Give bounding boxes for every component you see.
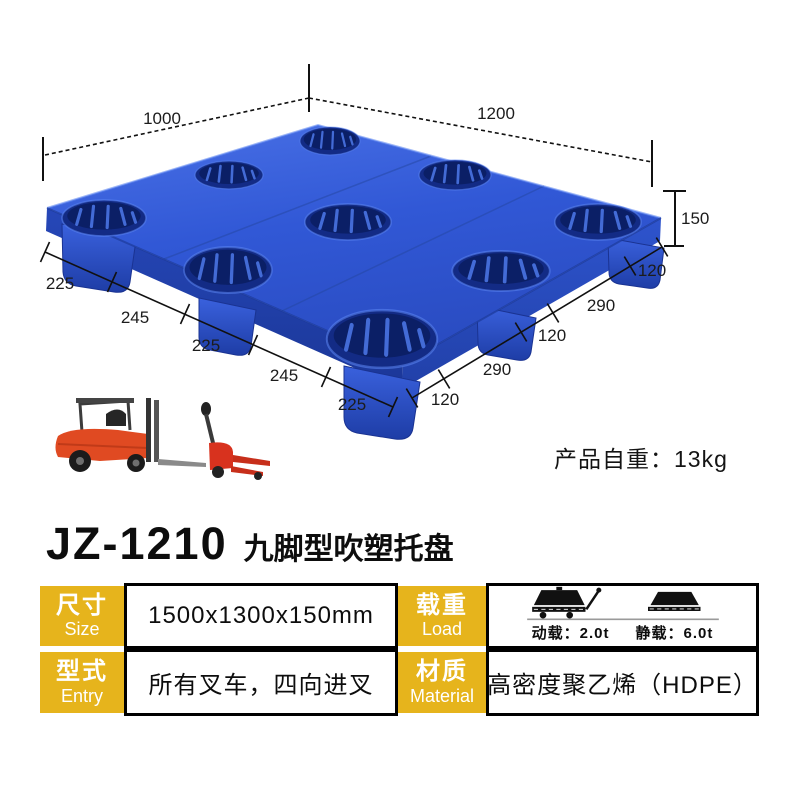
pallet-illustration	[46, 125, 664, 439]
dynamic-load-value: 动载：2.0t	[532, 622, 610, 643]
spec-value-size: 1500x1300x150mm	[124, 583, 398, 649]
spec-label-load: 载重 Load	[398, 583, 486, 649]
spec-label-entry-en: Entry	[61, 687, 103, 706]
dim-label-150: 150	[681, 209, 709, 228]
dim-label-left-4: 225	[338, 395, 366, 414]
dim-label-1200: 1200	[477, 104, 515, 123]
load-icons	[506, 586, 740, 621]
spec-value-entry: 所有叉车，四向进叉	[124, 649, 398, 716]
page-title: JZ-1210 九脚型吹塑托盘	[46, 518, 454, 570]
dim-label-left-1: 245	[121, 308, 149, 327]
static-load-icon	[648, 592, 701, 611]
dim-label-right-0: 120	[431, 390, 459, 409]
static-load-value: 静载：6.0t	[636, 622, 714, 643]
spec-value-load: 动载：2.0t 静载：6.0t	[486, 583, 759, 649]
spec-table: 尺寸 Size 1500x1300x150mm 载重 Load	[40, 583, 759, 716]
product-weight-note: 产品自重：13kg	[554, 440, 728, 474]
dim-label-1000: 1000	[143, 109, 181, 128]
spec-label-size-cn: 尺寸	[56, 593, 108, 618]
dim-label-left-2: 225	[192, 336, 220, 355]
dim-label-left-3: 245	[270, 366, 298, 385]
spec-label-size-en: Size	[64, 620, 99, 639]
dim-height: 150	[663, 191, 709, 246]
dim-label-left-0: 225	[46, 274, 74, 293]
spec-label-material-cn: 材质	[416, 659, 468, 684]
spec-label-load-en: Load	[422, 620, 462, 639]
spec-label-material-en: Material	[410, 687, 474, 706]
spec-label-size: 尺寸 Size	[40, 583, 124, 649]
spec-label-entry: 型式 Entry	[40, 649, 124, 716]
dynamic-load-icon	[532, 587, 601, 619]
forklift-icon	[56, 398, 207, 472]
spec-label-material: 材质 Material	[398, 649, 486, 716]
pallet-dimension-diagram: 1000 1200 150 225 245 225	[0, 0, 800, 510]
dim-label-right-2: 120	[538, 326, 566, 345]
dim-label-right-4: 120	[638, 261, 666, 280]
dim-label-right-1: 290	[483, 360, 511, 379]
product-name: 九脚型吹塑托盘	[244, 524, 454, 568]
model-number: JZ-1210	[46, 518, 228, 570]
pallet-jack-icon	[201, 402, 270, 480]
product-spec-sheet: 1000 1200 150 225 245 225	[0, 0, 800, 800]
load-labels: 动载：2.0t 静载：6.0t	[532, 622, 714, 643]
spec-value-material: 高密度聚乙烯（HDPE）	[486, 649, 759, 716]
dim-label-right-3: 290	[587, 296, 615, 315]
spec-label-load-cn: 载重	[416, 593, 468, 618]
spec-label-entry-cn: 型式	[56, 659, 108, 684]
